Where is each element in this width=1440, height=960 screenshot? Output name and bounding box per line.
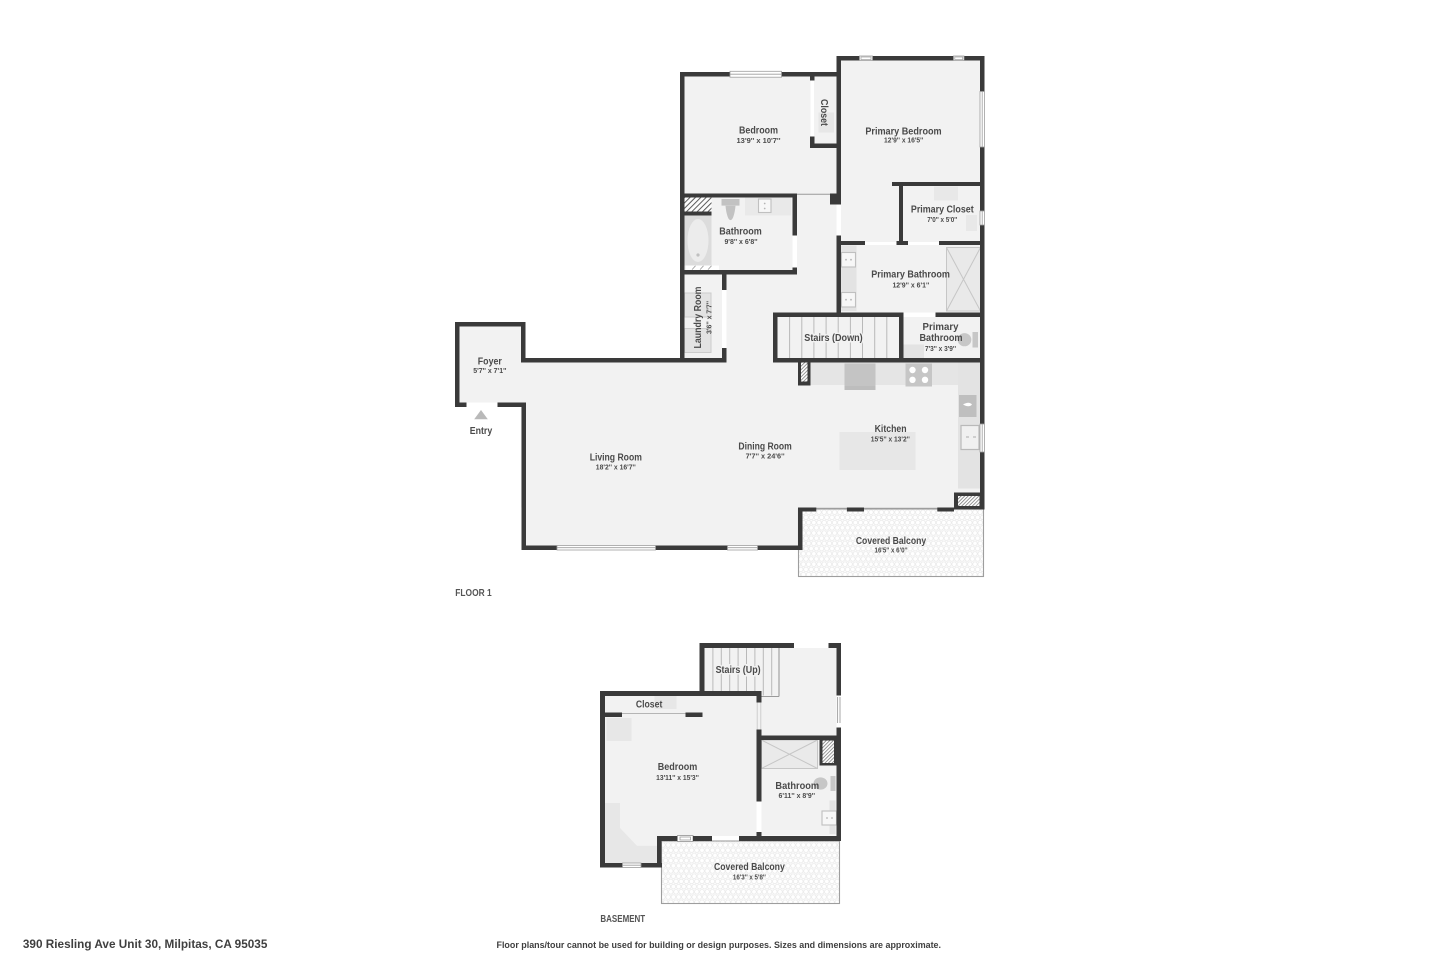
svg-text:Stairs (Up): Stairs (Up) xyxy=(716,665,761,676)
svg-text:BASEMENT: BASEMENT xyxy=(600,914,645,925)
svg-text:13'9'' x 10'7'': 13'9'' x 10'7'' xyxy=(737,138,781,145)
svg-text:13'11'' x 15'3'': 13'11'' x 15'3'' xyxy=(656,775,699,782)
svg-text:5'7'' x 7'1'': 5'7'' x 7'1'' xyxy=(473,368,507,375)
svg-text:Bathroom: Bathroom xyxy=(719,227,762,238)
svg-text:Primary Bathroom: Primary Bathroom xyxy=(871,269,950,280)
svg-text:18'2'' x 16'7'': 18'2'' x 16'7'' xyxy=(596,465,636,472)
svg-text:Covered Balcony: Covered Balcony xyxy=(856,536,927,547)
svg-text:16'5'' x 6'0'': 16'5'' x 6'0'' xyxy=(875,547,908,554)
svg-text:Stairs (Down): Stairs (Down) xyxy=(804,333,862,344)
svg-text:Bathroom: Bathroom xyxy=(775,781,819,792)
svg-text:Covered Balcony: Covered Balcony xyxy=(714,862,785,873)
svg-text:Laundry Room: Laundry Room xyxy=(693,286,704,348)
svg-text:7'7'' x 24'6'': 7'7'' x 24'6'' xyxy=(746,453,785,460)
svg-text:Floor plans/tour cannot be use: Floor plans/tour cannot be used for buil… xyxy=(497,940,942,950)
svg-text:12'9'' x 16'5'': 12'9'' x 16'5'' xyxy=(884,138,924,145)
svg-text:3'6'' x 7'7'': 3'6'' x 7'7'' xyxy=(707,301,714,334)
svg-text:12'9'' x 6'1'': 12'9'' x 6'1'' xyxy=(892,282,929,289)
svg-text:Closet: Closet xyxy=(818,99,829,127)
svg-text:Bathroom: Bathroom xyxy=(919,333,962,344)
svg-text:Primary: Primary xyxy=(923,322,959,333)
svg-text:390 Riesling Ave Unit 30, Milp: 390 Riesling Ave Unit 30, Milpitas, CA 9… xyxy=(23,937,268,951)
svg-text:Bedroom: Bedroom xyxy=(658,762,698,773)
svg-text:Closet: Closet xyxy=(636,700,663,711)
svg-text:FLOOR 1: FLOOR 1 xyxy=(455,588,492,599)
svg-text:6'11'' x 8'9'': 6'11'' x 8'9'' xyxy=(779,793,816,800)
svg-text:9'8'' x 6'8'': 9'8'' x 6'8'' xyxy=(724,239,757,246)
svg-text:Kitchen: Kitchen xyxy=(875,424,907,435)
svg-text:Primary Closet: Primary Closet xyxy=(911,204,974,215)
svg-text:Foyer: Foyer xyxy=(478,356,502,367)
svg-text:16'3'' x 5'8'': 16'3'' x 5'8'' xyxy=(733,874,766,881)
svg-text:7'0'' x 5'0'': 7'0'' x 5'0'' xyxy=(927,217,957,224)
svg-text:Bedroom: Bedroom xyxy=(739,126,778,137)
svg-text:Primary Bedroom: Primary Bedroom xyxy=(865,127,941,138)
svg-text:Entry: Entry xyxy=(470,426,493,437)
svg-text:Dining Room: Dining Room xyxy=(738,441,791,452)
svg-text:Living Room: Living Room xyxy=(590,453,642,464)
svg-text:7'3'' x 3'9'': 7'3'' x 3'9'' xyxy=(925,346,956,353)
svg-text:15'5'' x 13'2'': 15'5'' x 13'2'' xyxy=(871,437,910,444)
